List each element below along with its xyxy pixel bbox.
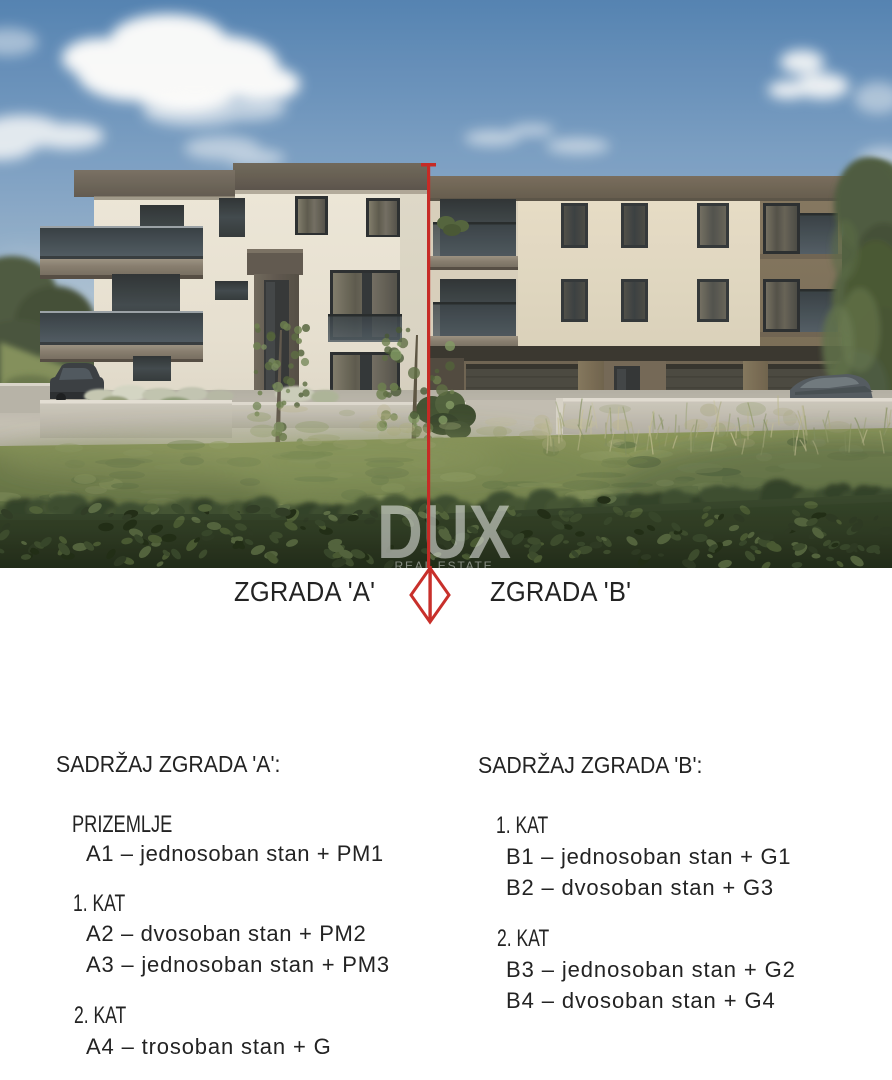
svg-text:DUX: DUX <box>377 490 511 568</box>
